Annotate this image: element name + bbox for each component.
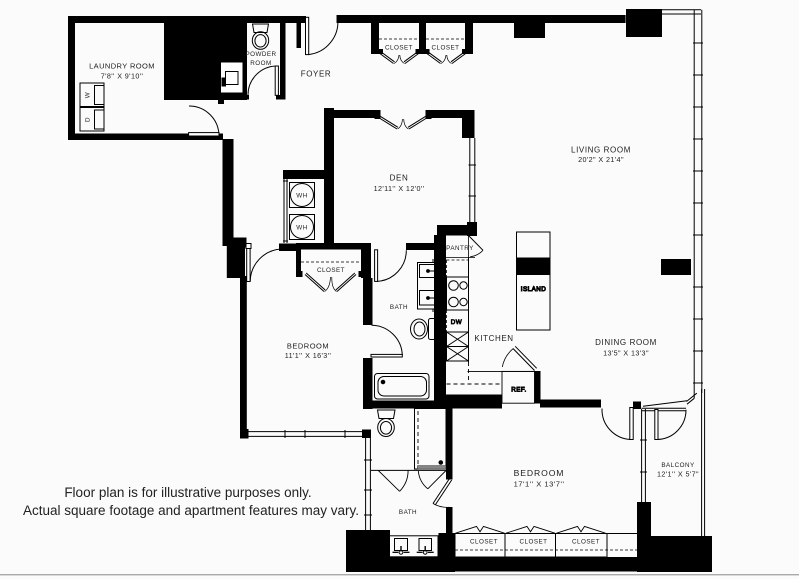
- svg-text:CLOSET: CLOSET: [470, 539, 498, 546]
- svg-text:12'11'' X 12'0'': 12'11'' X 12'0'': [374, 184, 425, 193]
- svg-text:W: W: [85, 92, 92, 98]
- svg-text:Actual square footage and apar: Actual square footage and apartment feat…: [23, 503, 359, 518]
- svg-text:BEDROOM: BEDROOM: [514, 468, 565, 478]
- svg-text:FOYER: FOYER: [301, 70, 332, 79]
- svg-text:CLOSET: CLOSET: [572, 539, 600, 546]
- svg-text:CLOSET: CLOSET: [432, 45, 460, 52]
- svg-text:13'5" X 13'3": 13'5" X 13'3": [603, 349, 649, 358]
- svg-text:BATH: BATH: [390, 304, 408, 311]
- svg-text:CLOSET: CLOSET: [520, 539, 548, 546]
- svg-text:20'2" X 21'4": 20'2" X 21'4": [578, 155, 624, 164]
- svg-text:D: D: [85, 117, 92, 122]
- svg-text:ISLAND: ISLAND: [521, 286, 546, 293]
- svg-text:WH: WH: [296, 193, 307, 200]
- svg-text:POWDER: POWDER: [245, 51, 276, 58]
- svg-text:KITCHEN: KITCHEN: [474, 334, 513, 343]
- svg-text:12'1'' X 5'7": 12'1'' X 5'7": [657, 470, 699, 479]
- svg-text:BATH: BATH: [399, 509, 417, 516]
- svg-text:BALCONY: BALCONY: [661, 462, 695, 469]
- svg-text:DEN: DEN: [390, 174, 409, 183]
- svg-text:DINING ROOM: DINING ROOM: [595, 338, 657, 347]
- svg-text:CLOSET: CLOSET: [317, 267, 345, 274]
- svg-text:LIVING ROOM: LIVING ROOM: [571, 146, 631, 155]
- svg-text:LAUNDRY ROOM: LAUNDRY ROOM: [89, 62, 155, 71]
- svg-text:REF.: REF.: [511, 387, 526, 394]
- svg-text:ROOM: ROOM: [250, 60, 271, 67]
- svg-text:WH: WH: [296, 225, 307, 232]
- svg-text:11'1'' X 16'3'': 11'1'' X 16'3'': [285, 351, 332, 360]
- svg-text:PANTRY: PANTRY: [446, 245, 474, 252]
- svg-text:BEDROOM: BEDROOM: [287, 342, 329, 351]
- svg-text:CLOSET: CLOSET: [385, 45, 413, 52]
- svg-text:Floor plan is for illustrative: Floor plan is for illustrative purposes …: [64, 485, 311, 500]
- svg-text:7'8'' X 9'10'': 7'8'' X 9'10'': [101, 72, 144, 81]
- svg-text:DW: DW: [451, 319, 462, 326]
- svg-text:17'1'' X 13'7'': 17'1'' X 13'7'': [514, 480, 565, 489]
